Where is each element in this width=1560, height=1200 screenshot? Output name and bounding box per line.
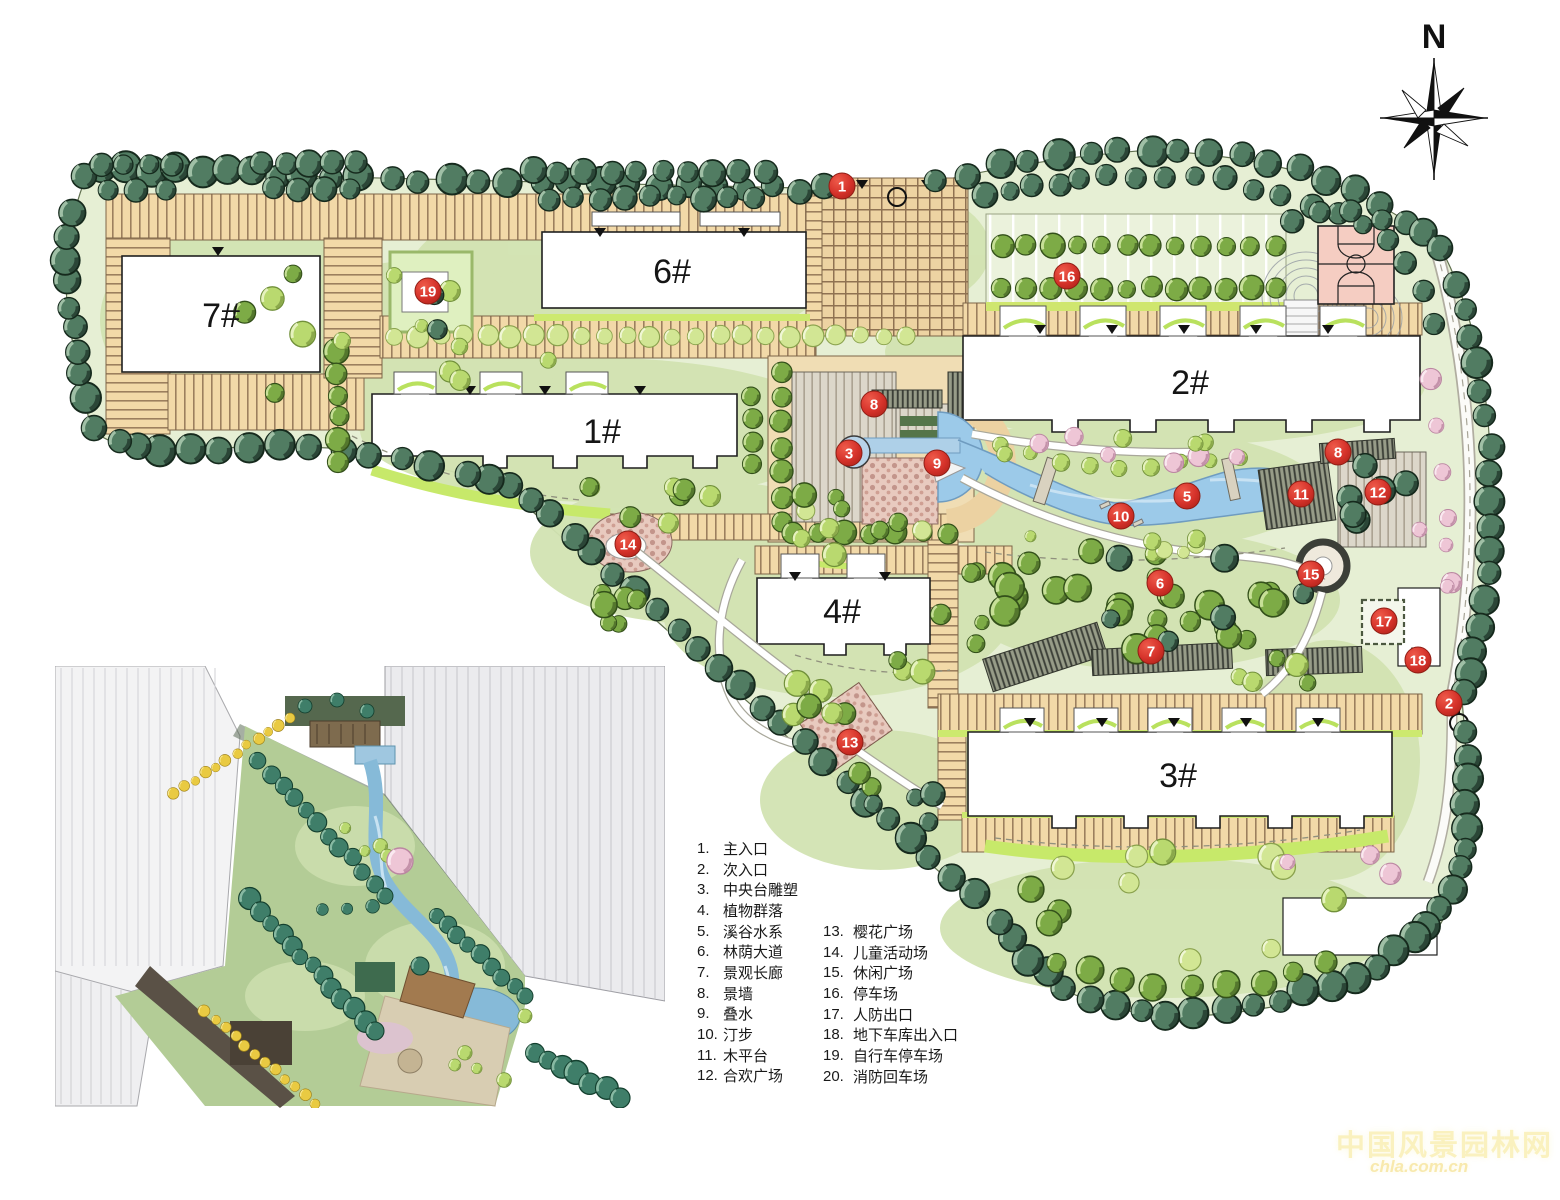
tree-icon [792, 530, 810, 548]
marker-12[interactable]: 12 [1365, 479, 1391, 505]
tree-icon [742, 387, 761, 406]
perspective-rendering-inset [55, 666, 665, 1108]
tree-icon [114, 155, 133, 174]
svg-text:7: 7 [1147, 644, 1155, 661]
tree-icon [1213, 971, 1240, 998]
tree-icon [392, 448, 414, 470]
tree-icon [1457, 325, 1481, 349]
tree-icon [743, 409, 763, 429]
tree-icon [1420, 368, 1441, 389]
tree-icon [264, 727, 273, 736]
tree-icon [263, 177, 285, 199]
tree-icon [1270, 185, 1291, 206]
tree-icon [913, 521, 932, 540]
tree-icon [250, 152, 272, 174]
tree-icon [211, 763, 220, 772]
tree-icon [1284, 962, 1303, 981]
tree-icon [1018, 552, 1040, 574]
tree-icon [673, 479, 695, 501]
tree-icon [167, 788, 179, 800]
tree-icon [717, 187, 738, 208]
tree-icon [124, 179, 147, 202]
tree-icon [755, 161, 778, 184]
tree-icon [1428, 236, 1453, 261]
tree-icon [98, 180, 118, 200]
tree-icon [428, 320, 447, 339]
tree-icon [788, 180, 812, 204]
tree-icon [1189, 277, 1211, 299]
legend-column-2: 13.樱花广场 14.儿童活动场 15.休闲广场 16.停车场 17.人防出口 … [823, 921, 1043, 1087]
tree-icon [1151, 1002, 1179, 1030]
svg-text:9: 9 [933, 456, 941, 473]
tree-icon [1101, 991, 1130, 1020]
tree-icon [1252, 971, 1277, 996]
tree-icon [1285, 653, 1308, 676]
tree-icon [285, 789, 303, 807]
tree-icon [962, 564, 981, 583]
tree-icon [449, 1059, 461, 1071]
legend-item: 5.溪谷水系 [697, 921, 798, 942]
tree-icon [972, 183, 997, 208]
building-label-2: 2# [1171, 364, 1209, 402]
tree-icon [1016, 278, 1037, 299]
tree-icon [296, 435, 321, 460]
tree-icon [386, 329, 403, 346]
tree-icon [1243, 672, 1262, 691]
tree-icon [497, 1073, 512, 1088]
tree-icon [620, 507, 641, 528]
marker-16[interactable]: 16 [1054, 263, 1080, 289]
marker-17[interactable]: 17 [1371, 608, 1397, 634]
tree-icon [1454, 721, 1477, 744]
tree-icon [1015, 235, 1035, 255]
tree-icon [1259, 589, 1287, 617]
tree-icon [889, 652, 907, 670]
tree-icon [1413, 280, 1434, 301]
tree-icon [597, 328, 613, 344]
tree-icon [1243, 994, 1265, 1016]
tree-icon [1211, 605, 1235, 629]
marker-8b[interactable]: 8 [1325, 439, 1351, 465]
building-label-3: 3# [1159, 757, 1197, 795]
tree-icon [1166, 278, 1188, 300]
tree-icon [691, 186, 717, 212]
tree-icon [200, 766, 212, 778]
tree-icon [1107, 546, 1132, 571]
tree-icon [310, 1099, 320, 1108]
tree-icon [770, 460, 793, 483]
tree-icon [1105, 138, 1129, 162]
legend-item: 17.人防出口 [823, 1004, 1043, 1025]
tree-icon [711, 325, 730, 344]
tree-icon [1244, 180, 1264, 200]
tree-icon [802, 325, 824, 347]
tree-icon [308, 813, 327, 832]
tree-icon [1468, 380, 1491, 403]
tree-icon [991, 278, 1010, 297]
tree-icon [1266, 278, 1286, 298]
tree-icon [82, 416, 107, 441]
tree-icon [750, 696, 774, 720]
tree-icon [1309, 202, 1330, 223]
tree-icon [1081, 142, 1103, 164]
tree-icon [493, 169, 522, 198]
legend-item: 7.景观长廊 [697, 962, 798, 983]
tree-icon [1177, 546, 1189, 558]
tree-icon [1166, 140, 1189, 163]
tree-icon [975, 615, 989, 629]
tree-icon [198, 1005, 210, 1017]
tree-icon [1361, 846, 1380, 865]
tree-icon [1082, 457, 1099, 474]
tree-icon [779, 327, 800, 348]
tree-icon [1269, 650, 1285, 666]
tree-icon [1126, 845, 1148, 867]
tree-icon [757, 327, 774, 344]
tree-icon [360, 704, 374, 718]
svg-text:18: 18 [1410, 653, 1427, 670]
marker-7[interactable]: 7 [1138, 638, 1164, 664]
tree-icon [590, 189, 612, 211]
tree-icon [743, 432, 763, 452]
tree-icon [1049, 174, 1071, 196]
north-arrow: N [1380, 18, 1488, 180]
tree-icon [743, 455, 762, 474]
tree-icon [517, 988, 533, 1004]
tree-icon [797, 694, 821, 718]
tree-icon [298, 699, 312, 713]
tree-icon [415, 451, 445, 481]
marker-10[interactable]: 10 [1108, 503, 1134, 529]
tree-icon [1270, 991, 1291, 1012]
tree-icon [253, 733, 264, 744]
legend-item: 2.次入口 [697, 859, 798, 880]
tree-icon [233, 749, 243, 759]
tree-icon [1166, 237, 1184, 255]
tree-icon [1434, 464, 1451, 481]
tree-icon [938, 864, 965, 891]
tree-icon [1342, 175, 1370, 203]
tree-icon [619, 327, 636, 344]
tree-icon [285, 713, 295, 723]
tree-icon [249, 752, 266, 769]
legend-item: 19.自行车停车场 [823, 1045, 1043, 1066]
tree-icon [686, 637, 710, 661]
tree-icon [653, 161, 674, 182]
tree-icon [1018, 876, 1044, 902]
tree-icon [238, 1040, 249, 1051]
tree-icon [326, 428, 350, 452]
tree-icon [1455, 299, 1476, 320]
tree-icon [242, 740, 251, 749]
tree-icon [330, 693, 344, 707]
tree-icon [1317, 971, 1347, 1001]
tree-icon [59, 200, 86, 227]
tree-icon [1474, 486, 1504, 516]
svg-text:5: 5 [1183, 489, 1191, 506]
tree-icon [321, 151, 344, 174]
tree-icon [161, 154, 183, 176]
tree-icon [987, 150, 1016, 179]
tree-icon [1150, 839, 1176, 865]
tree-icon [345, 151, 367, 173]
tree-icon [260, 1057, 270, 1067]
legend-column-1: 1.主入口 2.次入口 3.中央台雕塑 4.植物群落 5.溪谷水系 6.林荫大道… [697, 838, 798, 1086]
tree-icon [1241, 237, 1260, 256]
svg-text:2: 2 [1445, 696, 1453, 713]
tree-icon [340, 179, 360, 199]
marker-13[interactable]: 13 [837, 729, 863, 755]
tree-icon [270, 1064, 281, 1075]
tree-icon [823, 543, 847, 567]
tree-icon [1440, 510, 1457, 527]
tree-icon [1229, 449, 1245, 465]
tree-icon [1340, 502, 1366, 528]
marker-19[interactable]: 19 [415, 278, 441, 304]
tree-icon [727, 160, 750, 183]
tree-icon [290, 321, 316, 347]
legend-item: 15.休闲广场 [823, 962, 1043, 983]
tree-icon [538, 189, 560, 211]
tree-icon [992, 235, 1015, 258]
tree-icon [456, 462, 481, 487]
tree-icon [664, 329, 680, 345]
tree-icon [437, 164, 468, 195]
legend-item: 9.叠水 [697, 1004, 798, 1025]
tree-icon [221, 1022, 231, 1032]
tree-icon [356, 443, 381, 468]
tree-icon [300, 1089, 312, 1101]
tree-icon [700, 486, 721, 507]
tree-icon [877, 808, 900, 831]
tree-icon [1178, 998, 1209, 1029]
tree-icon [1040, 233, 1065, 258]
tree-icon [1239, 275, 1263, 299]
tree-icon [1230, 142, 1254, 166]
tree-icon [1093, 236, 1111, 254]
tree-icon [580, 478, 599, 497]
marker-11[interactable]: 11 [1288, 481, 1314, 507]
tree-icon [897, 327, 915, 345]
tree-icon [1353, 454, 1377, 478]
tree-icon [176, 434, 205, 463]
tree-icon [871, 521, 889, 539]
tree-icon [563, 187, 583, 207]
tree-icon [1281, 210, 1304, 233]
tree-icon [920, 813, 938, 831]
tree-icon [1142, 276, 1163, 297]
tree-icon [667, 186, 686, 205]
tree-icon [1078, 986, 1104, 1012]
tree-icon [1114, 430, 1132, 448]
tree-icon [822, 703, 843, 724]
tree-icon [1111, 461, 1127, 477]
tree-icon [1091, 278, 1113, 300]
tree-icon [772, 387, 792, 407]
tree-icon [344, 848, 361, 865]
tree-icon [451, 338, 468, 355]
tree-icon [58, 298, 79, 319]
tree-icon [1096, 165, 1117, 186]
tree-icon [366, 1022, 384, 1040]
tree-icon [1119, 873, 1139, 893]
marker-2[interactable]: 2 [1436, 690, 1462, 716]
tree-icon [359, 846, 370, 857]
tree-icon [1110, 968, 1134, 992]
tree-icon [1213, 166, 1237, 190]
legend-item: 10.汀步 [697, 1024, 798, 1045]
tree-icon [640, 185, 661, 206]
legend-item: 12.合欢广场 [697, 1066, 798, 1087]
tree-icon [1076, 956, 1103, 983]
tree-icon [1025, 531, 1036, 542]
tree-icon [411, 957, 429, 975]
tree-icon [1079, 539, 1104, 564]
tree-icon [1424, 314, 1445, 335]
tree-icon [51, 246, 80, 275]
legend: 1.主入口 2.次入口 3.中央台雕塑 4.植物群落 5.溪谷水系 6.林荫大道… [697, 838, 798, 1086]
tree-icon [387, 848, 413, 874]
tree-icon [1164, 453, 1184, 473]
marker-6[interactable]: 6 [1147, 570, 1173, 596]
tree-icon [967, 635, 985, 653]
tree-icon [1287, 154, 1313, 180]
tree-icon [1179, 949, 1201, 971]
tree-icon [179, 781, 190, 792]
tree-icon [626, 161, 647, 182]
svg-text:10: 10 [1113, 509, 1130, 526]
tree-icon [1372, 210, 1392, 230]
tree-icon [330, 407, 349, 426]
tree-icon [573, 327, 590, 344]
tree-icon [1118, 281, 1135, 298]
tree-icon [910, 659, 935, 684]
svg-text:17: 17 [1376, 614, 1393, 631]
tree-icon [1144, 533, 1161, 550]
tree-icon [206, 438, 232, 464]
svg-text:11: 11 [1293, 487, 1309, 504]
svg-text:1: 1 [838, 179, 846, 196]
tree-icon [334, 332, 351, 349]
tree-icon [312, 177, 336, 201]
tree-icon [1069, 236, 1087, 254]
tree-icon [287, 178, 310, 201]
tree-icon [1254, 150, 1281, 177]
tree-icon [1440, 579, 1454, 593]
tree-icon [328, 452, 349, 473]
tree-icon [54, 225, 79, 250]
tree-icon [317, 904, 329, 916]
tree-icon [272, 720, 284, 732]
tree-icon [571, 159, 596, 184]
tree-icon [687, 328, 704, 345]
tree-icon [66, 340, 90, 364]
tree-icon [342, 903, 353, 914]
svg-text:14: 14 [620, 537, 637, 554]
tree-icon [770, 410, 792, 432]
marker-8a[interactable]: 8 [861, 391, 887, 417]
svg-text:13: 13 [842, 735, 859, 752]
tree-icon [784, 671, 810, 697]
tree-icon [834, 501, 850, 517]
tree-icon [1139, 235, 1161, 257]
tree-icon [386, 268, 402, 284]
tree-icon [1047, 954, 1066, 973]
tree-icon [849, 762, 871, 784]
tree-icon [1429, 418, 1444, 433]
tree-icon [354, 864, 370, 880]
tree-icon [819, 518, 839, 538]
svg-text:8: 8 [870, 397, 878, 414]
marker-3[interactable]: 3 [836, 440, 862, 466]
tree-icon [601, 563, 624, 586]
tree-icon [1280, 854, 1295, 869]
tree-icon [290, 1082, 300, 1092]
tree-icon [547, 325, 568, 346]
tree-icon [1101, 447, 1116, 462]
tree-icon [156, 180, 176, 200]
marker-14[interactable]: 14 [615, 531, 641, 557]
tree-icon [1186, 167, 1204, 185]
tree-icon [1044, 139, 1075, 170]
tree-icon [1020, 174, 1042, 196]
tree-icon [458, 1046, 472, 1060]
tree-icon [1266, 236, 1286, 256]
tree-icon [219, 755, 231, 767]
tree-icon [1030, 434, 1048, 452]
tree-icon [250, 1049, 260, 1059]
marker-9[interactable]: 9 [924, 450, 950, 476]
marker-5[interactable]: 5 [1174, 483, 1200, 509]
tree-icon [1412, 522, 1427, 537]
svg-text:8: 8 [1334, 445, 1342, 462]
tree-icon [276, 153, 298, 175]
tree-icon [519, 488, 543, 512]
tree-icon [1380, 863, 1401, 884]
tree-icon [938, 524, 958, 544]
tree-icon [212, 1015, 221, 1024]
marker-1[interactable]: 1 [829, 173, 855, 199]
tree-icon [792, 483, 816, 507]
tree-icon [499, 326, 521, 348]
tree-icon [377, 888, 393, 904]
tree-icon [1195, 139, 1222, 166]
tree-icon [1461, 347, 1492, 378]
tree-icon [521, 157, 547, 183]
tree-icon [1188, 436, 1203, 451]
tree-icon [646, 598, 668, 620]
svg-text:16: 16 [1059, 269, 1076, 286]
tree-icon [1154, 167, 1175, 188]
tree-icon [1069, 169, 1089, 189]
legend-item: 3.中央台雕塑 [697, 879, 798, 900]
tree-icon [1215, 278, 1237, 300]
tree-icon [613, 186, 637, 210]
tree-icon [826, 325, 846, 345]
tree-icon [699, 160, 725, 186]
marker-15[interactable]: 15 [1298, 561, 1324, 587]
tree-icon [1142, 459, 1159, 476]
tree-icon [329, 387, 348, 406]
tree-icon [772, 362, 792, 382]
tree-icon [601, 162, 624, 185]
tree-icon [1322, 887, 1347, 912]
marker-18[interactable]: 18 [1405, 647, 1431, 673]
tree-icon [71, 383, 101, 413]
tree-icon [1118, 235, 1138, 255]
tree-icon [658, 513, 678, 533]
tree-icon [1188, 530, 1206, 548]
